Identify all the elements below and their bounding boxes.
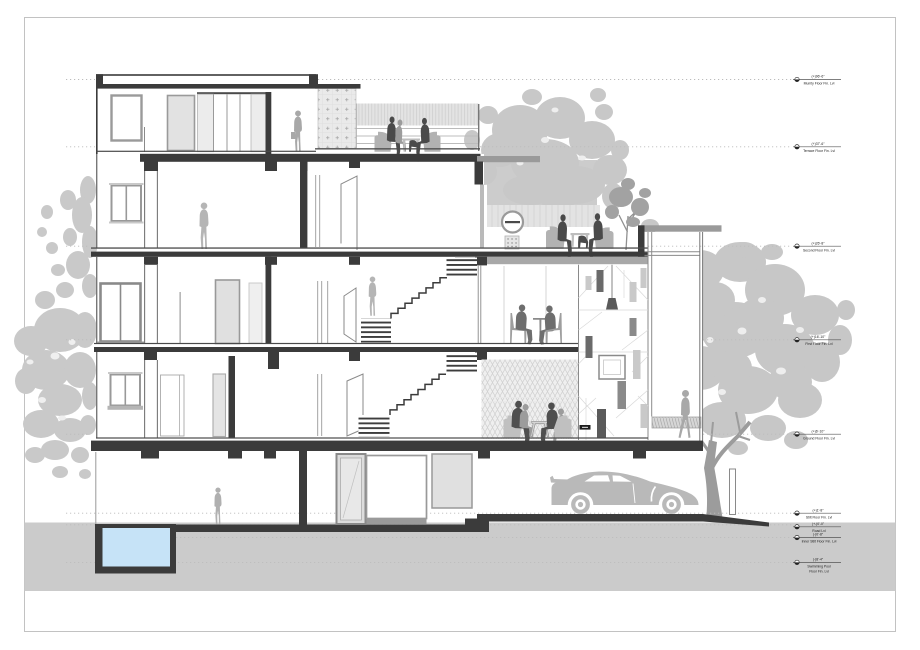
svg-text:(-)0'-8": (-)0'-8" xyxy=(813,533,824,537)
svg-text:Ground Floor Fin. Lvl: Ground Floor Fin. Lvl xyxy=(803,436,835,440)
svg-text:(+)96'-6": (+)96'-6" xyxy=(812,75,826,79)
svg-text:Swimming Pool: Swimming Pool xyxy=(807,565,831,569)
svg-text:(+)37'-6": (+)37'-6" xyxy=(812,142,826,146)
svg-text:First Floor Fin. Lvl: First Floor Fin. Lvl xyxy=(805,342,832,346)
svg-text:Second Floor Fin. Lvl: Second Floor Fin. Lvl xyxy=(803,248,835,252)
svg-text:(-)8'-4": (-)8'-4" xyxy=(813,558,824,562)
svg-text:(+)6'-10": (+)6'-10" xyxy=(812,429,826,433)
svg-text:(+-)0'-0": (+-)0'-0" xyxy=(812,522,825,526)
svg-text:Stilt Floor Fin. Lvl: Stilt Floor Fin. Lvl xyxy=(806,515,832,519)
svg-text:(+)26'-8": (+)26'-8" xyxy=(812,241,826,245)
svg-text:Floor Fin. Lvl: Floor Fin. Lvl xyxy=(809,570,829,574)
svg-text:Mumty Floor Fin. Lvl: Mumty Floor Fin. Lvl xyxy=(804,82,835,86)
svg-text:(+)1'-8": (+)1'-8" xyxy=(813,508,825,512)
svg-text:(+)16'-10": (+)16'-10" xyxy=(811,335,827,339)
svg-text:Terrace Floor Fin. Lvl: Terrace Floor Fin. Lvl xyxy=(803,149,835,153)
svg-text:Inner Stilt Floor Fin. Lvl: Inner Stilt Floor Fin. Lvl xyxy=(802,540,837,544)
